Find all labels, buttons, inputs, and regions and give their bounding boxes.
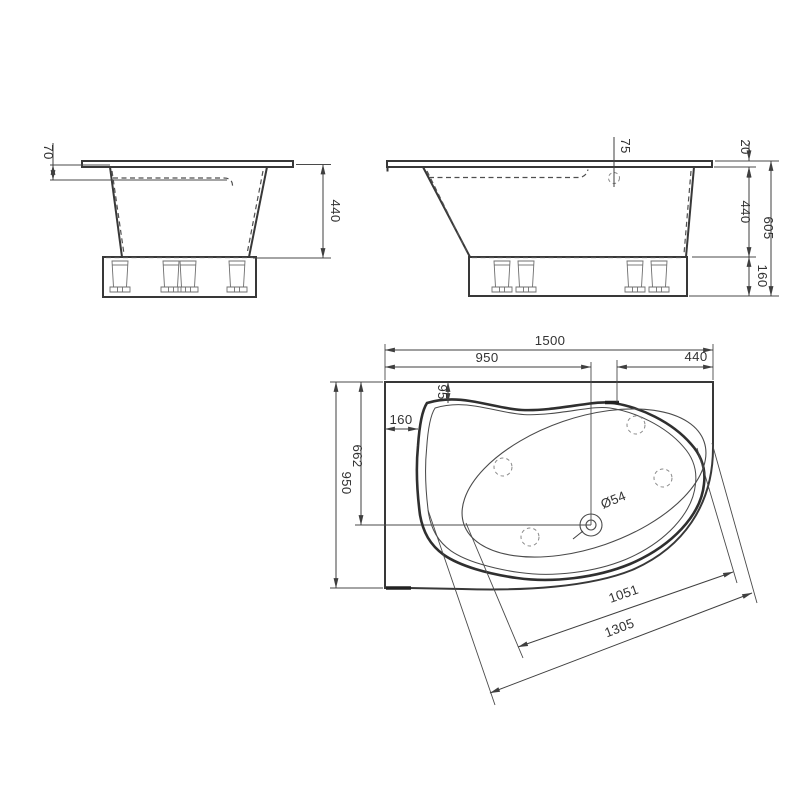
dim-side-440: 440 xyxy=(328,200,343,223)
front-ledge-hidden-line xyxy=(429,170,588,178)
jet-symbol-1 xyxy=(494,458,512,476)
dim-plan-950-left: 950 xyxy=(339,472,354,495)
plan-view: Ø54 1500 950 440 95 160 950 662 1051 130… xyxy=(330,333,757,705)
front-rim xyxy=(387,161,712,167)
dim-front-440: 440 xyxy=(738,201,753,224)
side-foot-1 xyxy=(110,261,130,292)
dim-plan-440: 440 xyxy=(685,349,708,364)
front-foot-4 xyxy=(649,261,669,292)
bathtub-drawing: 70 440 75 20 440 160 xyxy=(0,0,800,800)
side-view: 70 440 xyxy=(41,143,343,297)
side-left-wall xyxy=(110,167,122,257)
front-foot-3 xyxy=(625,261,645,292)
side-foot-3 xyxy=(178,261,198,292)
plan-rim-inner-edge xyxy=(426,405,696,575)
dim-plan-662: 662 xyxy=(350,445,365,468)
plan-basin xyxy=(443,380,725,586)
front-plinth xyxy=(469,257,687,296)
side-plinth xyxy=(103,257,256,297)
side-right-wall xyxy=(249,167,267,257)
dim-front-605: 605 xyxy=(761,217,776,240)
front-view: 75 20 440 160 605 xyxy=(387,137,779,296)
dim-side-70: 70 xyxy=(41,144,56,159)
side-foot-4 xyxy=(227,261,247,292)
dim-front-20: 20 xyxy=(738,139,753,154)
drain-symbol xyxy=(573,514,602,539)
dim-plan-160: 160 xyxy=(390,412,413,427)
front-foot-1 xyxy=(492,261,512,292)
dim-plan-95: 95 xyxy=(435,384,450,399)
dim-plan-1500: 1500 xyxy=(535,333,566,348)
side-rim xyxy=(82,161,293,167)
jet-symbol-4 xyxy=(521,528,539,546)
dim-plan-950-top: 950 xyxy=(476,350,499,365)
dim-front-75: 75 xyxy=(618,138,633,153)
jet-symbol-3 xyxy=(654,469,672,487)
dim-plan-drain-dia: Ø54 xyxy=(599,488,629,512)
dim-plan-1051: 1051 xyxy=(607,582,641,606)
technical-drawing-canvas: 70 440 75 20 440 160 xyxy=(0,0,800,800)
dim-plan-1305: 1305 xyxy=(602,615,636,640)
jet-symbol-2 xyxy=(627,416,645,434)
dim-front-160: 160 xyxy=(755,265,770,288)
front-foot-2 xyxy=(516,261,536,292)
